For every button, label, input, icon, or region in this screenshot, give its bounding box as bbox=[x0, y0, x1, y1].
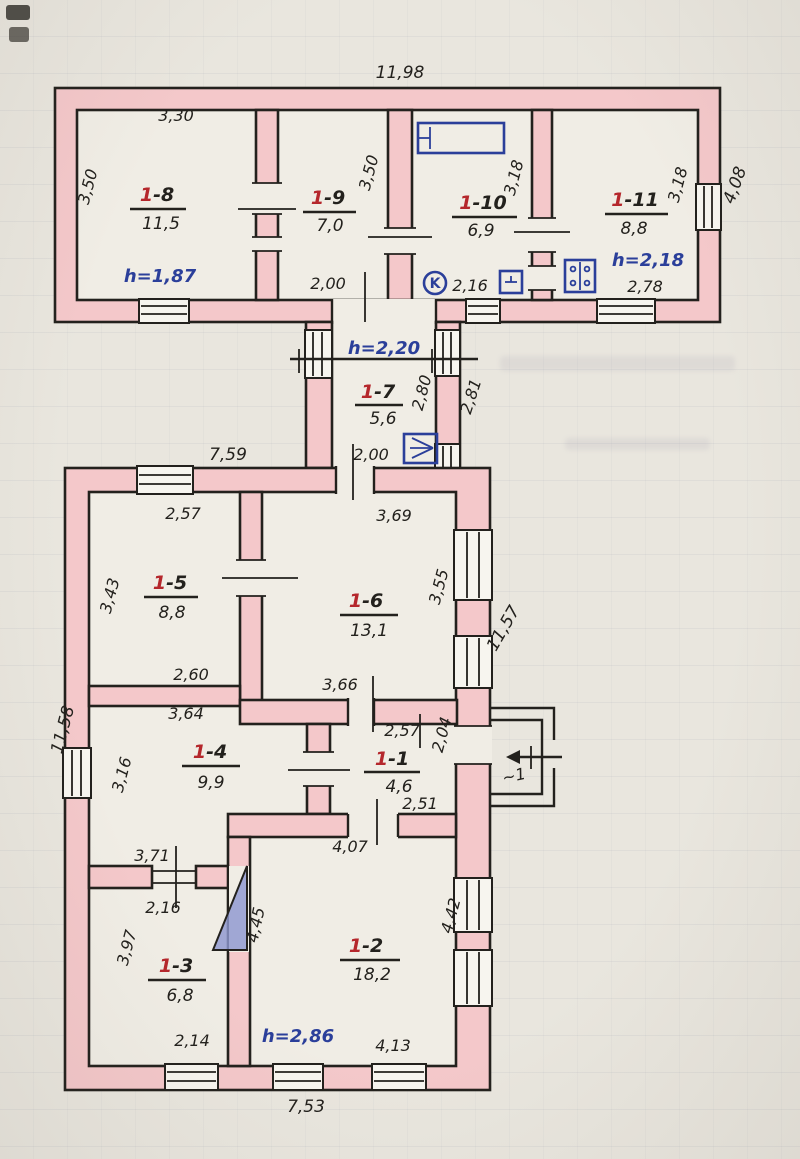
room-1-9-area: 7,0 bbox=[316, 216, 343, 236]
room-number-suffix: -7 bbox=[374, 381, 396, 403]
dim-lower-bottom-width: 7,53 bbox=[287, 1097, 325, 1117]
dim-1-1-bottom: 2,51 bbox=[402, 794, 438, 813]
ceiling-height-1-7: h=2,20 bbox=[348, 338, 420, 359]
room-1-10-number: 1-10 bbox=[459, 192, 507, 214]
dim-1-7-bottom: 2,00 bbox=[353, 445, 389, 464]
room-1-1-number: 1-1 bbox=[375, 748, 409, 770]
room-1-7-area: 5,6 bbox=[369, 409, 396, 429]
dim-1-2-top: 4,07 bbox=[332, 837, 368, 856]
dim-1-4-door: 2,16 bbox=[145, 898, 181, 917]
dim-1-5-top: 2,57 bbox=[165, 504, 201, 523]
room-1-11-number: 1-11 bbox=[611, 189, 659, 211]
room-number-prefix: 1 bbox=[349, 935, 362, 957]
room-number-prefix: 1 bbox=[153, 572, 166, 594]
room-1-5-number: 1-5 bbox=[153, 572, 187, 594]
room-number-suffix: -5 bbox=[166, 572, 187, 594]
room-1-9-number: 1-9 bbox=[311, 187, 345, 209]
room-1-8-number: 1-8 bbox=[140, 184, 174, 206]
room-number-prefix: 1 bbox=[159, 955, 172, 977]
ceiling-height-1-2: h=2,86 bbox=[262, 1026, 334, 1047]
floor-plan-photo: K 11,98 3,30 3,50 1-8 11,5 bbox=[0, 0, 800, 1159]
room-number-suffix: -3 bbox=[172, 955, 193, 977]
room-1-5-area: 8,8 bbox=[158, 603, 185, 623]
room-number-prefix: 1 bbox=[349, 590, 362, 612]
circled-k-letter: K bbox=[430, 276, 442, 292]
room-number-prefix: 1 bbox=[311, 187, 324, 209]
room-number-suffix: -8 bbox=[153, 184, 174, 206]
room-1-3-number: 1-3 bbox=[159, 955, 193, 977]
dim-1-2-bottom: 4,13 bbox=[375, 1036, 411, 1055]
dim-1-1-top: 2,57 bbox=[384, 721, 420, 740]
room-1-8-area: 11,5 bbox=[142, 214, 180, 234]
room-number-suffix: -4 bbox=[206, 741, 227, 763]
room-number-suffix: -10 bbox=[472, 192, 506, 214]
dim-1-5-bottom: 2,60 bbox=[173, 665, 209, 684]
room-1-11-area: 8,8 bbox=[620, 219, 647, 239]
dim-lower-top-width: 7,59 bbox=[209, 445, 247, 465]
room-number-prefix: 1 bbox=[140, 184, 153, 206]
room-1-4-area: 9,9 bbox=[197, 773, 224, 793]
room-number-suffix: -6 bbox=[362, 590, 383, 612]
dim-1-4-top: 3,64 bbox=[168, 704, 204, 723]
room-number-suffix: -1 bbox=[388, 748, 409, 770]
room-number-suffix: -9 bbox=[324, 187, 345, 209]
floor-plan-canvas: K 11,98 3,30 3,50 1-8 11,5 bbox=[0, 0, 800, 1159]
dim-1-9-bottom: 2,00 bbox=[310, 274, 346, 293]
dim-1-6-top: 3,69 bbox=[376, 506, 412, 525]
room-number-suffix: -2 bbox=[362, 935, 383, 957]
room-number-prefix: 1 bbox=[193, 741, 206, 763]
room-1-6-area: 13,1 bbox=[350, 621, 388, 641]
dim-1-8-top: 3,30 bbox=[158, 106, 194, 125]
room-1-4-number: 1-4 bbox=[193, 741, 227, 763]
room-1-2-number: 1-2 bbox=[349, 935, 383, 957]
ceiling-height-1-8: h=1,87 bbox=[124, 266, 197, 287]
ceiling-height-1-11: h=2,18 bbox=[612, 250, 684, 271]
dim-top-total-width: 11,98 bbox=[376, 63, 425, 83]
porch-label: ~1 bbox=[500, 764, 527, 787]
dim-1-4-bottom: 3,71 bbox=[134, 846, 170, 865]
dim-1-10-bottom: 2,16 bbox=[452, 276, 488, 295]
room-1-10-area: 6,9 bbox=[467, 221, 494, 241]
room-1-7-number: 1-7 bbox=[361, 381, 396, 403]
room-number-suffix: -11 bbox=[624, 189, 658, 211]
dim-right-total-height: 4,08 bbox=[719, 164, 751, 207]
room-number-prefix: 1 bbox=[459, 192, 472, 214]
dim-1-3-bottom: 2,14 bbox=[174, 1031, 210, 1050]
dim-1-6-bottom: 3,66 bbox=[322, 675, 358, 694]
room-number-prefix: 1 bbox=[375, 748, 388, 770]
room-number-prefix: 1 bbox=[611, 189, 624, 211]
room-1-2-area: 18,2 bbox=[353, 965, 391, 985]
room-1-6-number: 1-6 bbox=[349, 590, 383, 612]
room-number-prefix: 1 bbox=[361, 381, 374, 403]
dim-1-11-bottom: 2,78 bbox=[627, 277, 663, 296]
room-1-3-area: 6,8 bbox=[166, 986, 193, 1006]
